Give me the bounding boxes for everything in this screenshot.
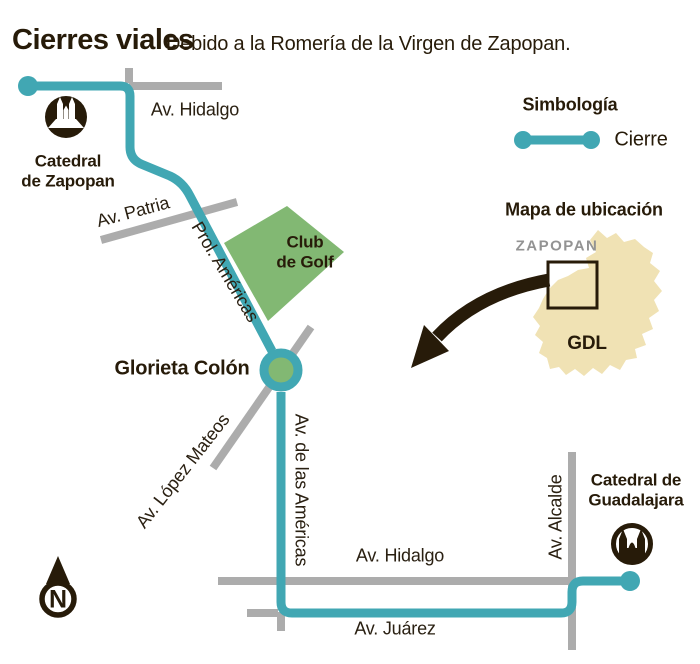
locator-zapopan-label: ZAPOPAN — [516, 237, 599, 254]
locator-heading: Mapa de ubicación — [505, 200, 663, 221]
club-golf-line1: Club — [276, 232, 333, 252]
legend-heading: Simbología — [522, 95, 617, 116]
closure-end-dot — [620, 571, 640, 591]
catedral-guadalajara-label: Catedral de Guadalajara — [588, 470, 683, 509]
glorieta-colon-label: Glorieta Colón — [115, 358, 250, 381]
catedral-zapopan-line2: de Zapopan — [21, 171, 114, 191]
catedral-zapopan-line1: Catedral — [21, 151, 114, 171]
road-closures-infographic: Cierres viales Debido a la Romería de la… — [0, 0, 700, 664]
legend-closure-label: Cierre — [614, 129, 667, 152]
guadalajara-cathedral-icon — [614, 526, 651, 563]
street-label-av-hidalgo-bottom: Av. Hidalgo — [356, 546, 444, 567]
street-label-av-de-las-americas: Av. de las Américas — [291, 414, 312, 567]
catedral-zapopan-label: Catedral de Zapopan — [21, 151, 114, 190]
zapopan-cathedral-icon — [45, 96, 87, 138]
club-golf-line2: de Golf — [276, 252, 333, 272]
street-label-av-juarez: Av. Juárez — [354, 619, 435, 640]
glorieta-colon-roundabout — [264, 353, 298, 387]
locator-gdl-label: GDL — [567, 333, 607, 355]
locator-arrow-icon — [411, 280, 549, 368]
legend-closure-sample — [514, 131, 600, 149]
compass-north-label: N — [49, 586, 67, 615]
catedral-gdl-line2: Guadalajara — [588, 490, 683, 510]
club-de-golf-label: Club de Golf — [276, 232, 333, 271]
street-label-av-alcalde: Av. Alcalde — [546, 474, 567, 559]
closure-start-dot — [18, 76, 38, 96]
street-label-av-hidalgo-top: Av. Hidalgo — [151, 100, 239, 121]
catedral-gdl-line1: Catedral de — [588, 470, 683, 490]
page-subtitle: Debido a la Romería de la Virgen de Zapo… — [166, 33, 570, 56]
